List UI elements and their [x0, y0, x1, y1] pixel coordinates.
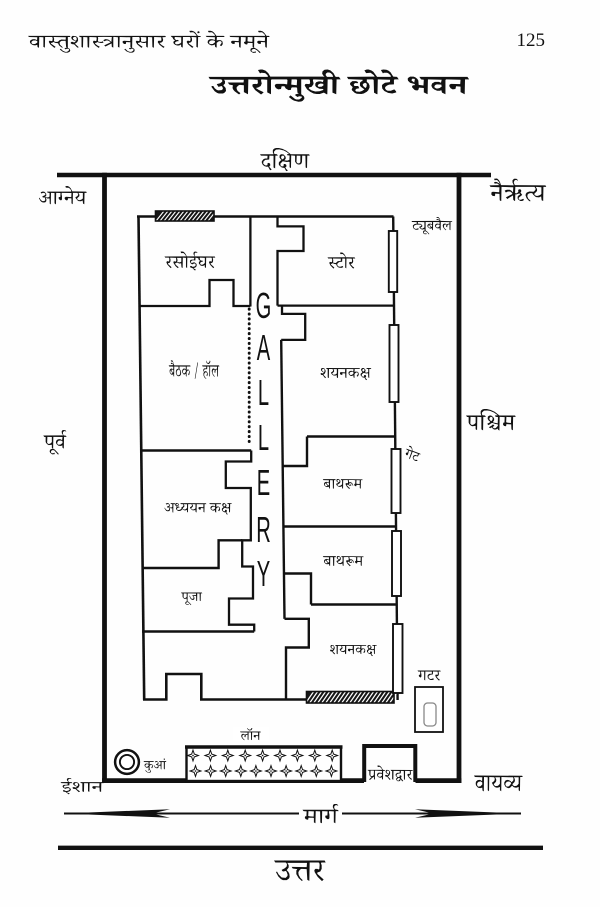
svg-text:L: L: [258, 419, 269, 458]
svg-text:A: A: [257, 329, 271, 368]
svg-text:125: 125: [517, 30, 546, 51]
svg-text:L: L: [258, 374, 269, 413]
svg-text:Y: Y: [257, 555, 270, 594]
svg-text:R: R: [256, 511, 271, 550]
svg-text:G: G: [256, 287, 272, 326]
svg-text:E: E: [257, 464, 270, 503]
